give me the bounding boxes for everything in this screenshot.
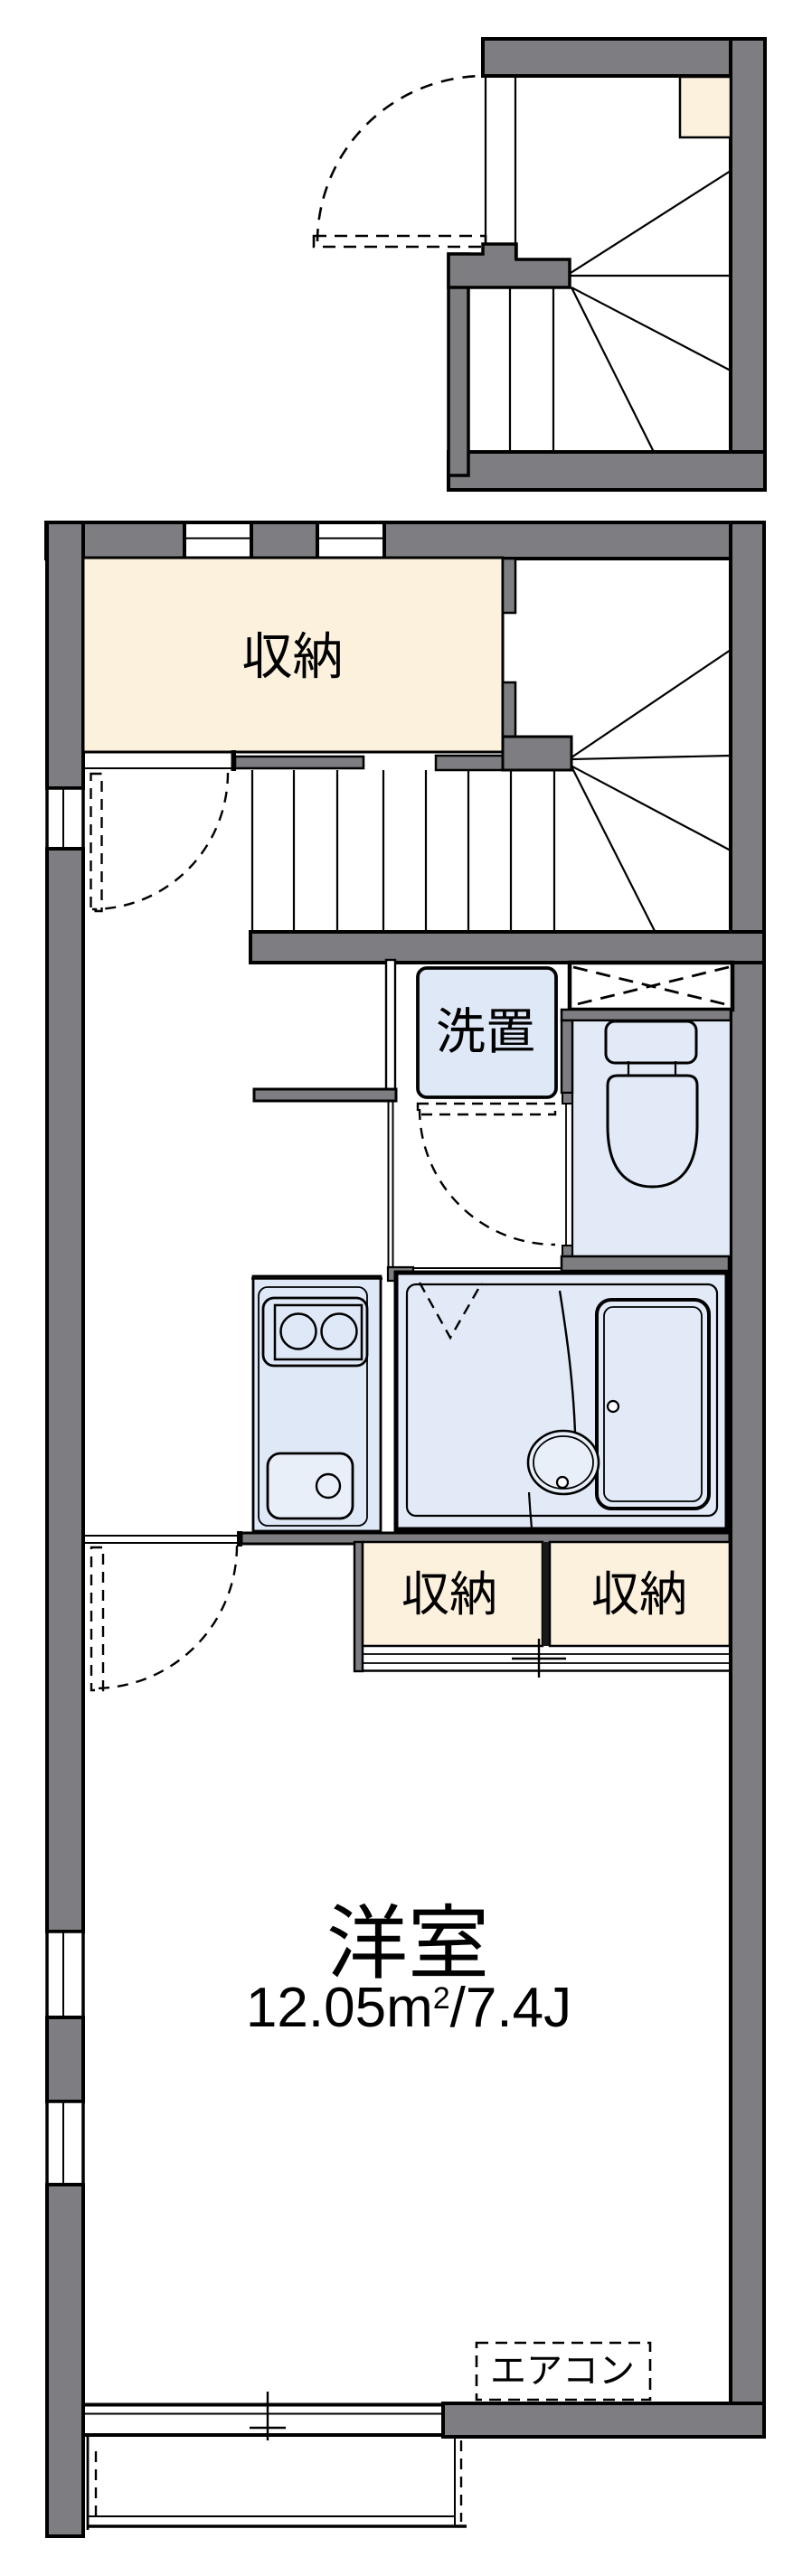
svg-text:12.05m2/7.4J: 12.05m2/7.4J xyxy=(246,1977,571,2039)
